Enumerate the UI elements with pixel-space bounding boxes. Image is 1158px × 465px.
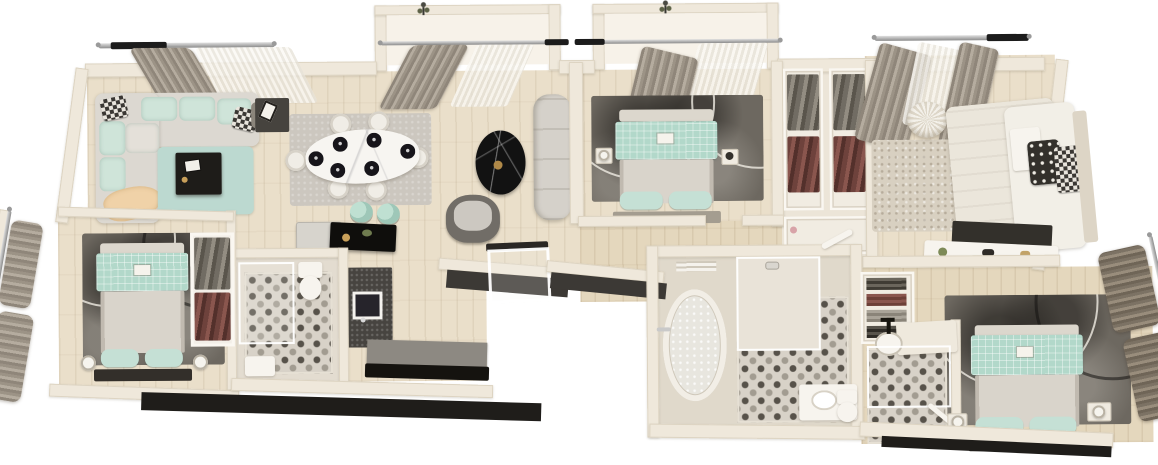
rod-finial (872, 35, 877, 40)
bedroom-tc-wall-right (771, 61, 784, 227)
bed-pillow-mint (145, 349, 184, 367)
wardrobe-open (190, 232, 235, 346)
rod-finial (272, 41, 277, 46)
guest-bath-wall-top (230, 248, 348, 259)
shower-enclosure (736, 256, 821, 351)
toilet-bowl (299, 276, 321, 300)
vanity-basin (811, 390, 837, 410)
rod-finial (1027, 34, 1032, 39)
bedroom-tc-wall-bottom-a (578, 215, 706, 227)
pink-accessory (790, 226, 797, 233)
bed-decor-card (1017, 347, 1033, 357)
entry-glass-door (487, 247, 551, 304)
bed-decor-card (657, 133, 673, 143)
black-faucet-arm (881, 318, 895, 322)
bedside-lamp (81, 355, 96, 370)
greens-dish (362, 229, 372, 236)
tub-faucet (657, 327, 671, 331)
sofa-back-cushion-mint (179, 97, 215, 121)
bed-top-center (615, 109, 718, 224)
hanging-clothes-maroon (787, 136, 819, 192)
place-setting (366, 132, 382, 148)
plant-icon (416, 1, 430, 19)
wardrobe-column (783, 68, 824, 210)
curtain-rod-dark-segment (987, 34, 1029, 41)
place-setting (308, 151, 324, 167)
ensuite-shower-glass (867, 345, 951, 408)
bed-pillow-mint (669, 191, 712, 209)
bedroom-tc-wall-bottom-b (742, 215, 784, 226)
rod-finial (778, 38, 783, 43)
floor-plan (0, 0, 1158, 462)
place-setting (332, 136, 348, 152)
gold-decor-dot (182, 177, 188, 183)
sink-faucet (361, 317, 366, 322)
place-setting (400, 143, 416, 159)
bedside-lamp (193, 355, 208, 370)
bath-wall-bottom (649, 424, 865, 440)
exterior-wall-left-slant (55, 67, 89, 223)
dining-chair (285, 150, 306, 171)
bath-wall-left (646, 245, 659, 437)
bench-sofa (533, 94, 572, 220)
shower-glass (238, 262, 295, 344)
magazine (185, 160, 200, 172)
gold-dish (342, 234, 350, 242)
place-setting (330, 163, 346, 179)
bathtub (662, 289, 727, 401)
rod-finial (378, 40, 383, 45)
bed-pillow-mint (101, 349, 140, 367)
kitchen-sink (352, 291, 382, 319)
round-pouf (907, 101, 947, 137)
bed-foot-sheet (619, 109, 713, 122)
bedside-lamp (598, 150, 609, 161)
folded-clothes (866, 278, 906, 290)
dark-taupe-curtain-bunch (1097, 244, 1158, 334)
gray-armchair (446, 195, 500, 243)
hanging-clothes-gray (194, 237, 230, 289)
sofa-back-cushion-mint (141, 97, 177, 121)
hanging-clothes-gray (787, 74, 819, 130)
curtain-rod-dark-segment (575, 39, 605, 45)
hanging-clothes-maroon (194, 292, 230, 340)
dark-taupe-curtain-bunch (1122, 330, 1158, 423)
bed-bottom-left (96, 243, 189, 382)
bedside-lamp (1092, 405, 1105, 418)
place-setting (364, 161, 380, 177)
bedroom-tr-wall-bottom (862, 255, 1060, 268)
folded-clothes (866, 294, 906, 306)
plant-icon (658, 0, 672, 17)
bed-sheet (100, 291, 185, 354)
hanging-clothes-maroon (833, 136, 865, 192)
sofa-seat-cushion (125, 123, 159, 153)
bar-stool-mint (350, 201, 373, 222)
bed-headboard (94, 369, 192, 382)
gold-decor (494, 161, 503, 170)
guest-bath-wall-right (338, 248, 349, 388)
towel-rail (676, 261, 716, 271)
sofa-back-cushion-mint (99, 157, 125, 191)
curtain-rod-dark-segment (545, 39, 569, 45)
rod-finial (96, 42, 101, 47)
bed-pillow-mint (620, 191, 663, 209)
nightstand-decor (725, 152, 733, 160)
taupe-curtain-bunch (0, 310, 34, 403)
sofa-back-cushion-mint (99, 121, 125, 155)
shower-head (766, 263, 778, 269)
bath-mat (245, 356, 275, 376)
bed-decor-card (134, 265, 150, 275)
bar-stool-mint (377, 203, 400, 224)
toilet-main-bath-bowl (837, 402, 857, 422)
armchair-seat (454, 201, 492, 231)
foyer-bedroom-wall (569, 62, 584, 224)
